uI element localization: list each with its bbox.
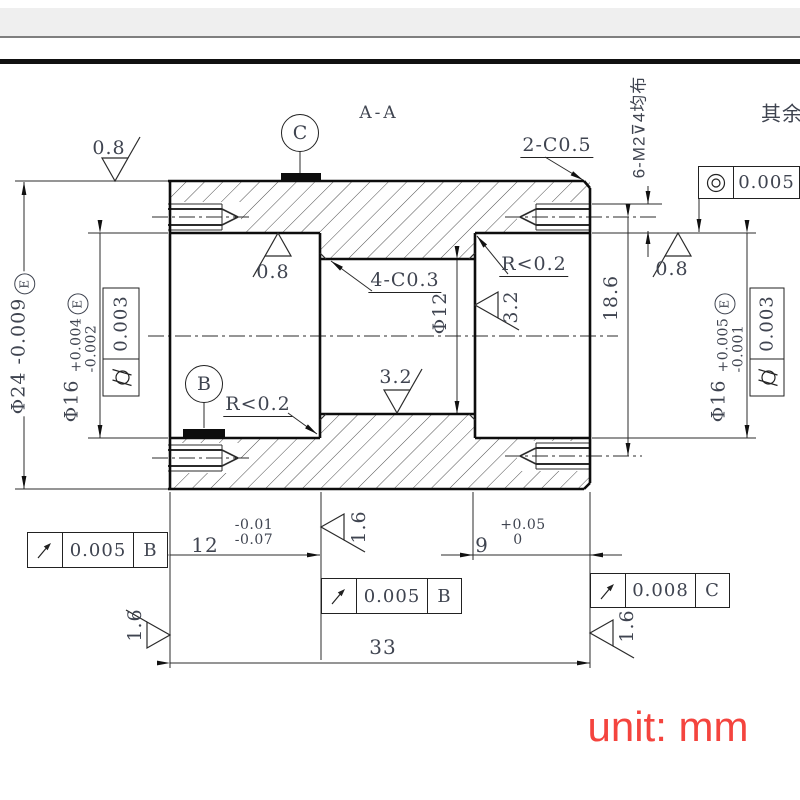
chamfer-inner-label: 4-C0.3 <box>368 269 441 291</box>
thread-callout: 6-M2⊽4均布 <box>625 76 650 179</box>
roughness-bore-center: 3.2 <box>379 366 412 388</box>
fillet-upper-label: R<0.2 <box>499 253 568 275</box>
fcf-runout-right: 0.008 C <box>590 573 730 608</box>
fcf-concentricity: 0.005 <box>698 166 800 199</box>
fcf-value: 0.003 <box>751 289 784 360</box>
roughness-step-right: 3.2 <box>500 290 522 323</box>
fcf-runout-left: 0.005 B <box>27 532 168 568</box>
section-label: A-A <box>359 103 398 123</box>
dim-bore-left: Φ16 +0.004-0.002E <box>61 294 100 423</box>
dim-bore-right: Φ16 +0.005-0.001E <box>708 294 747 423</box>
dim-od: Φ24 -0.009E <box>7 272 35 417</box>
unit-note: unit: mm <box>587 703 748 751</box>
runout-icon <box>591 574 625 607</box>
dim-depth-left-value: 12 <box>191 533 218 557</box>
envelope-icon: E <box>67 294 88 315</box>
envelope-icon: E <box>714 294 735 315</box>
datum-c-bar <box>281 173 321 181</box>
dim-length: 33 <box>369 635 396 659</box>
roughness-face-left: 1.6 <box>124 608 146 641</box>
roughness-top-face: 0.8 <box>92 137 125 159</box>
fcf-value: 0.008 <box>625 574 695 607</box>
fcf-value: 0.005 <box>733 167 799 198</box>
engineering-drawing: A-A 其余 6-M2⊽4均布 2-C0.5 4-C0.3 R<0.2 R<0.… <box>0 0 800 800</box>
runout-icon <box>322 579 356 613</box>
fcf-datum: B <box>133 533 167 567</box>
dim-depth-right-tol: +0.05 0 <box>500 518 545 548</box>
roughness-bore-left: 0.8 <box>256 261 289 283</box>
others-note: 其余 <box>761 98 800 127</box>
fcf-cylindricity-right: 0.003 <box>750 288 785 397</box>
datum-b-bar <box>183 429 225 437</box>
fcf-datum: C <box>695 574 729 607</box>
datum-b-circle: B <box>185 365 223 403</box>
fcf-runout-mid: 0.005 B <box>321 578 462 614</box>
fcf-datum: B <box>427 579 461 613</box>
drawing-canvas <box>0 0 800 800</box>
fillet-lower-label: R<0.2 <box>223 393 292 415</box>
dim-depth-right-value: 9 <box>475 533 489 557</box>
roughness-bore-right: 0.8 <box>655 258 688 280</box>
cylindricity-icon <box>751 360 784 396</box>
dim-hole-span: 18.6 <box>600 275 622 321</box>
chamfer-outer-label: 2-C0.5 <box>520 134 593 156</box>
dim-bore-center: Φ12 <box>429 292 451 335</box>
roughness-face-right: 1.6 <box>616 609 638 642</box>
dim-depth-left-tol: -0.01 -0.07 <box>235 518 273 548</box>
section-hatching <box>166 181 591 488</box>
concentricity-icon <box>699 167 733 198</box>
runout-icon <box>28 533 62 567</box>
fcf-value: 0.003 <box>104 289 139 360</box>
fcf-value: 0.005 <box>62 533 133 567</box>
roughness-step-left: 1.6 <box>348 510 370 543</box>
datum-c-circle: C <box>281 114 319 152</box>
cylindricity-icon <box>104 360 139 396</box>
envelope-icon: E <box>14 274 35 295</box>
fcf-value: 0.005 <box>356 579 427 613</box>
fcf-cylindricity-left: 0.003 <box>103 288 140 397</box>
page-top-rules <box>0 8 800 64</box>
